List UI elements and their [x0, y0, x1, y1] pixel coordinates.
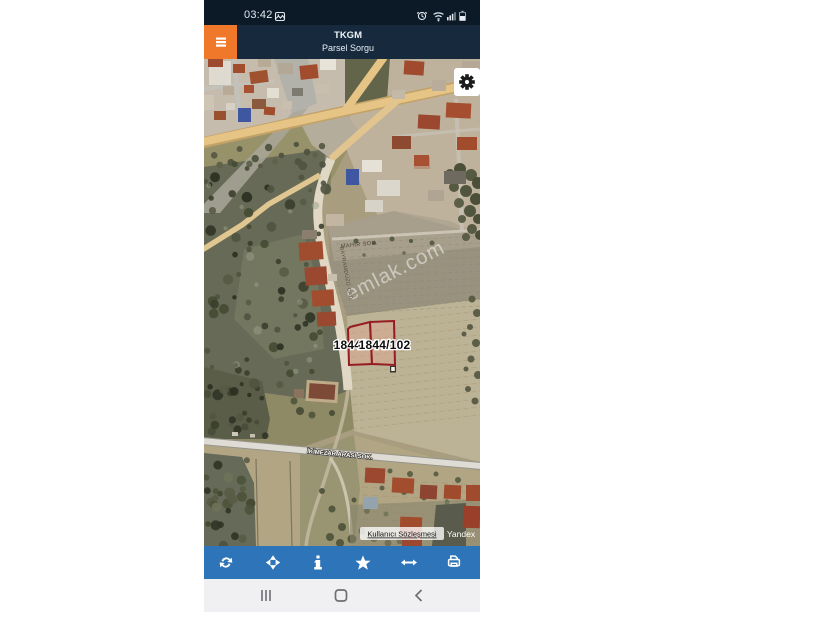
svg-text:1844/102: 1844/102 [359, 338, 411, 352]
svg-text:Kullanıcı Sözleşmesi: Kullanıcı Sözleşmesi [367, 530, 437, 539]
svg-text:Yandex: Yandex [447, 529, 476, 539]
